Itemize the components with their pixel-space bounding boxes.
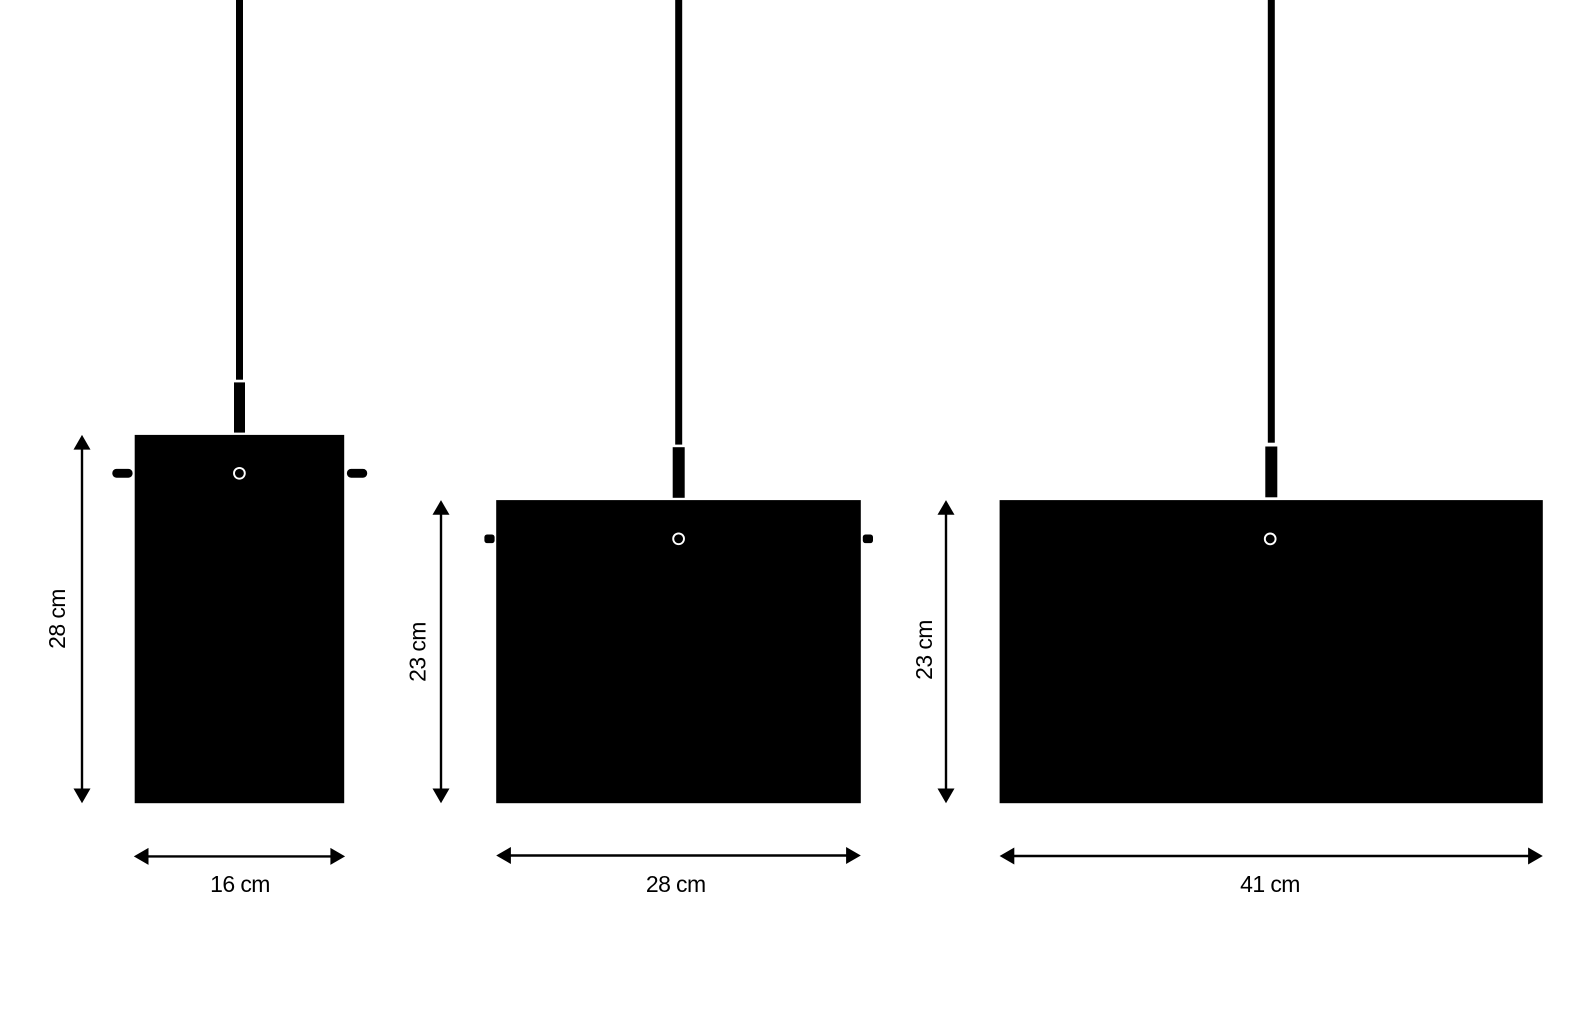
svg-text:41 cm: 41 cm xyxy=(1240,871,1300,897)
svg-text:23 cm: 23 cm xyxy=(911,620,937,680)
svg-text:23 cm: 23 cm xyxy=(405,622,431,682)
svg-text:16 cm: 16 cm xyxy=(210,871,270,897)
svg-text:28 cm: 28 cm xyxy=(44,589,70,649)
svg-text:28 cm: 28 cm xyxy=(646,871,706,897)
